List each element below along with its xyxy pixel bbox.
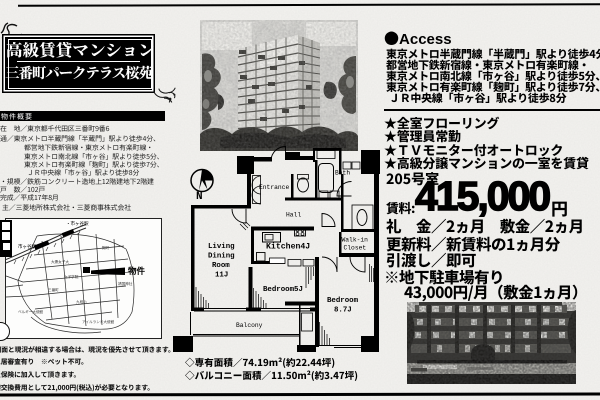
svg-text:Kitchen4J: Kitchen4J [266,242,310,252]
svg-text:Bath: Bath [335,170,350,177]
svg-text:三番町: 三番町 [48,287,59,293]
svg-text:N: N [196,191,203,203]
svg-text:物件: 物件 [128,266,146,277]
svg-text:11J: 11J [215,272,228,280]
svg-text:Room: Room [212,262,230,270]
svg-text:女子学院: 女子学院 [64,274,79,280]
svg-text:Entrance: Entrance [259,184,289,191]
svg-text:Hall: Hall [286,212,301,219]
svg-text:8.7J: 8.7J [334,307,352,315]
svg-text:Balcony: Balcony [236,322,263,329]
svg-text:Dining: Dining [208,253,235,261]
svg-text:九段小: 九段小 [76,299,87,305]
svg-text:・市ヶ谷駅: ・市ヶ谷駅 [66,220,89,227]
svg-text:大妻女子大: 大妻女子大 [51,259,69,265]
svg-text:Closet: Closet [344,245,367,252]
svg-text:Walk-in: Walk-in [342,237,369,244]
svg-text:Bedroom5J: Bedroom5J [263,286,303,294]
svg-text:市ヶ谷駅: 市ヶ谷駅 [18,243,36,250]
svg-text:靖国神社: 靖国神社 [118,281,133,287]
svg-text:Living: Living [208,243,235,251]
svg-text:麹町: 麹町 [102,245,110,251]
svg-text:アイルランド大使館: アイルランド大使館 [82,319,115,325]
svg-text:Bedroom: Bedroom [327,297,359,305]
